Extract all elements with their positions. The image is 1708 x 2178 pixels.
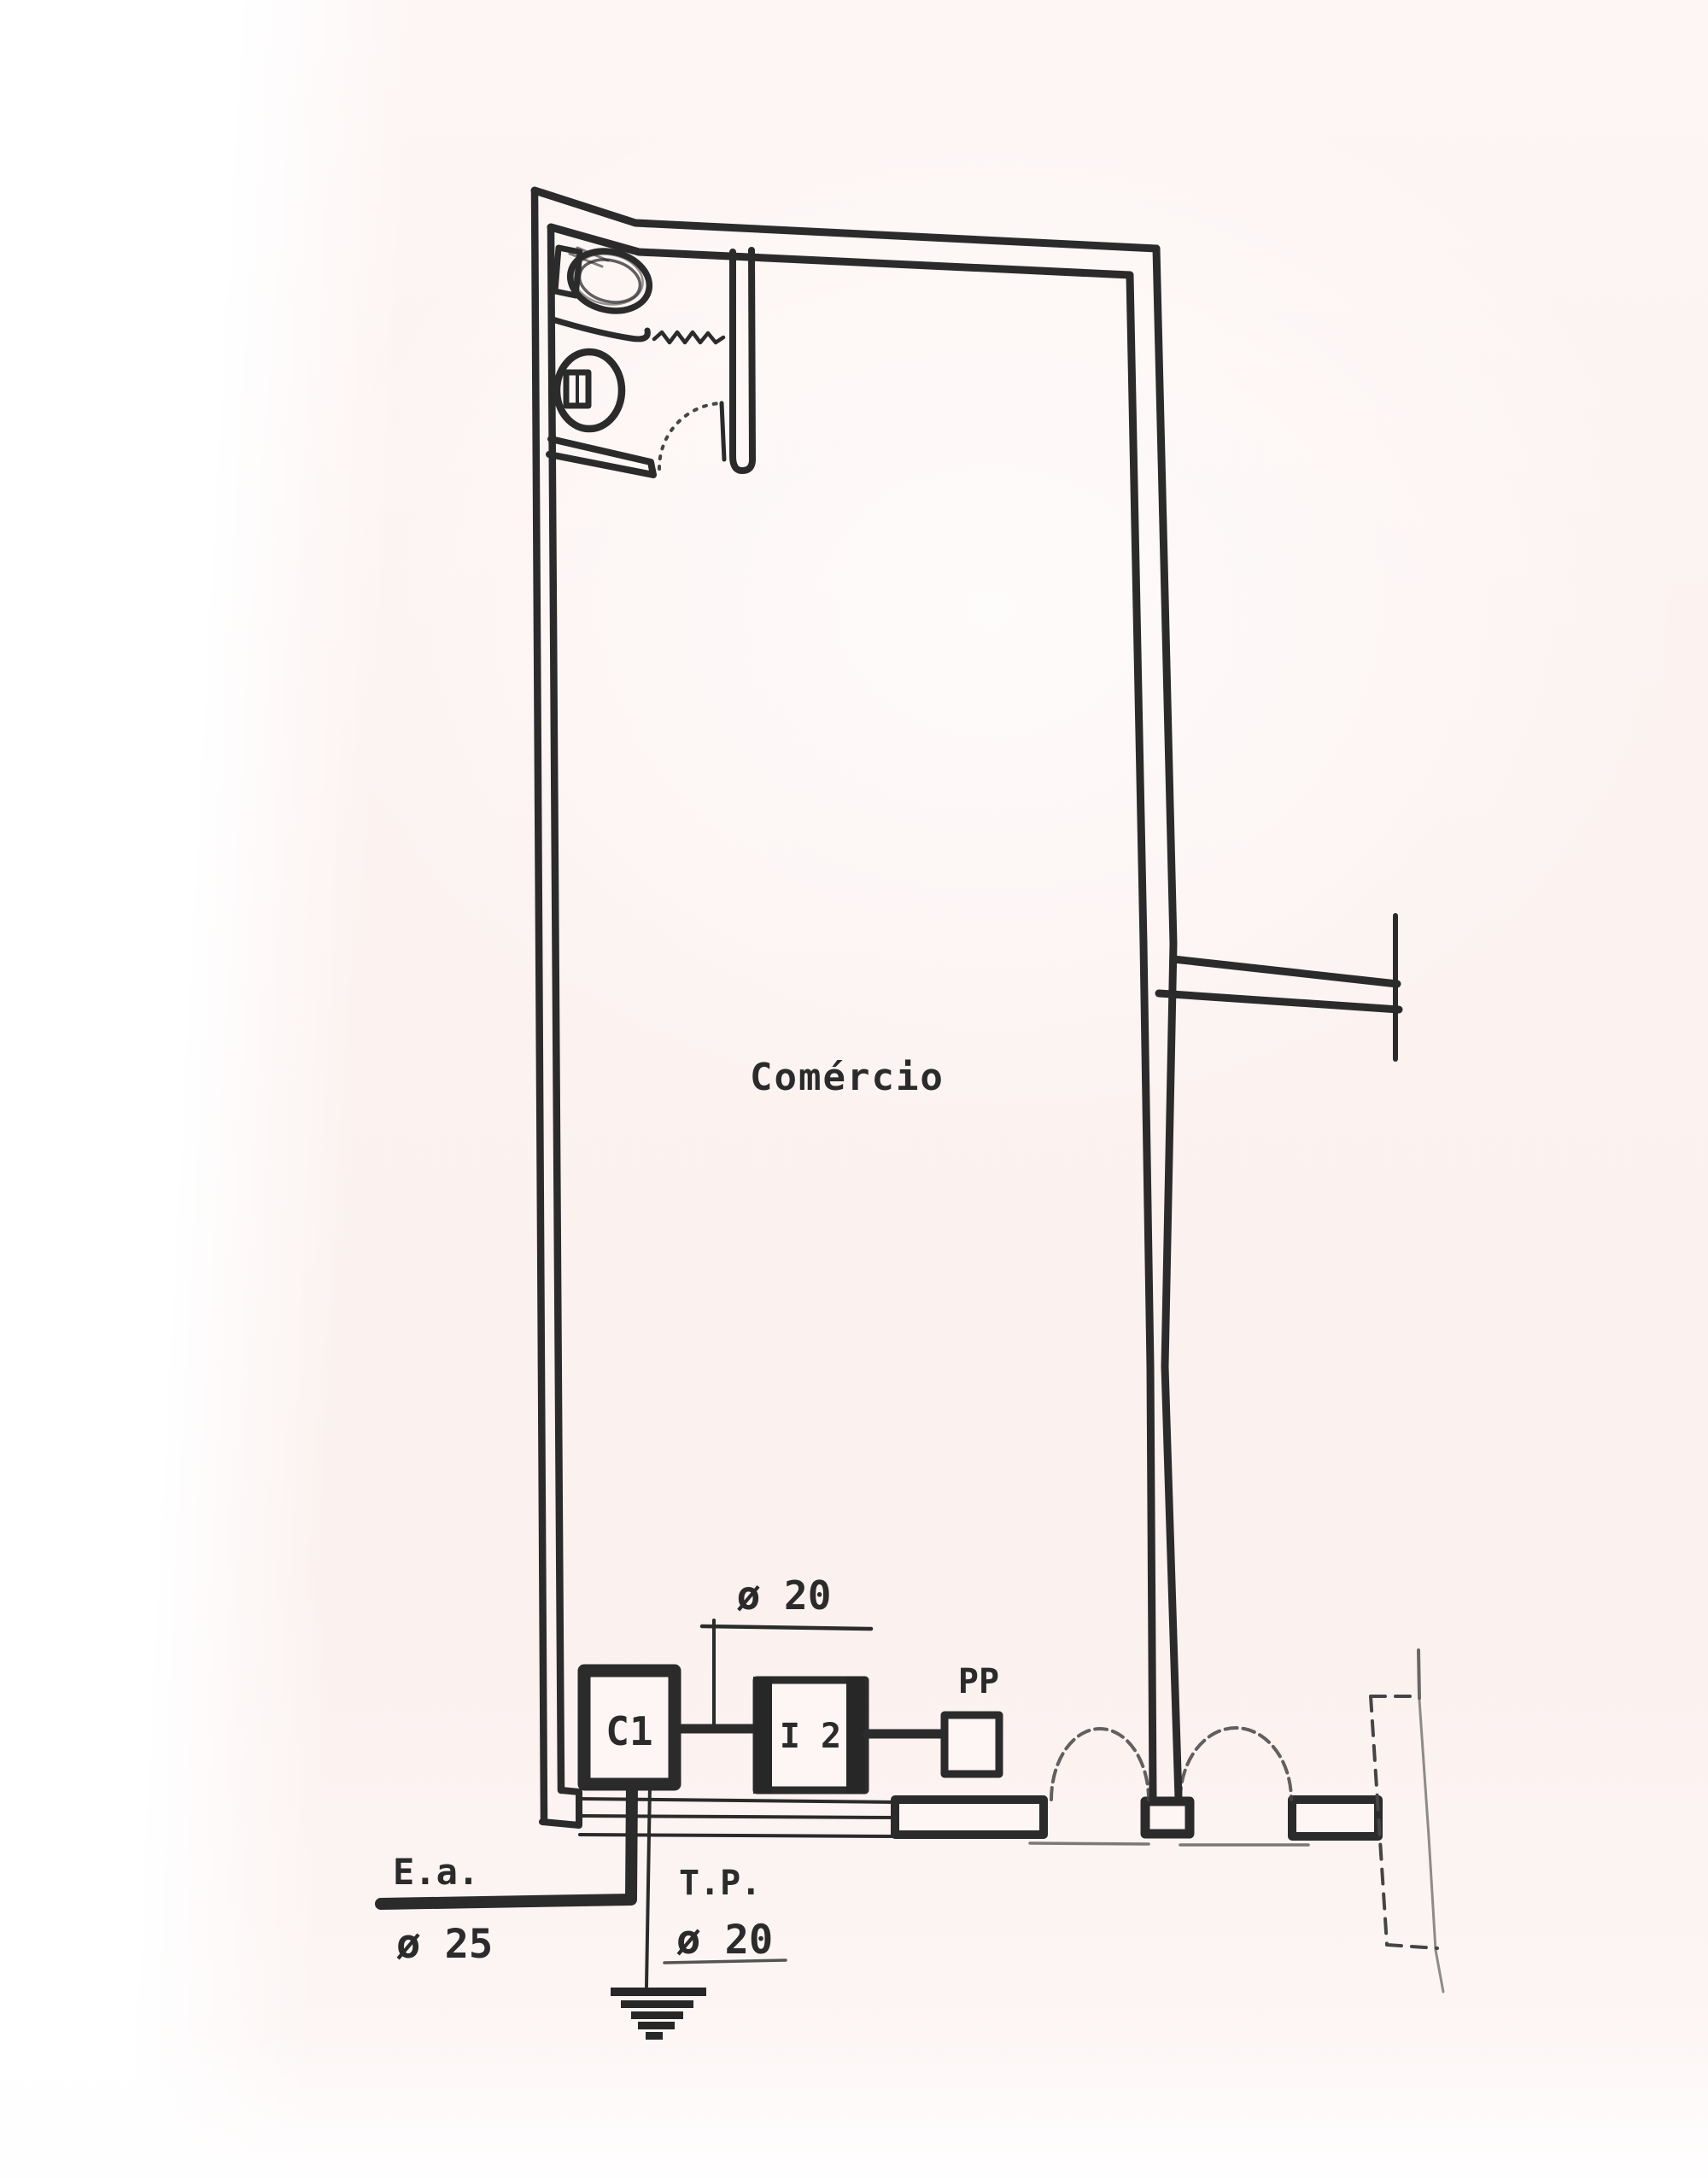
door-swing-icon	[1051, 1729, 1149, 1800]
right-wall-inner-line	[1130, 275, 1153, 1799]
right-wall-outer-line	[1156, 249, 1179, 1799]
door-swing-icon	[1180, 1728, 1291, 1800]
floor-plan-drawing: C1 ø 20 I 2 PP E.a. ø 25 T.P. ø 20 Comér…	[0, 0, 1708, 2178]
bathroom-partition-wall	[733, 250, 752, 471]
left-wall-end-cap	[542, 1790, 579, 1825]
projection-stub-line	[1418, 1650, 1419, 1698]
bathroom	[549, 243, 752, 475]
scanned-floor-plan-page: C1 ø 20 I 2 PP E.a. ø 25 T.P. ø 20 Comér…	[0, 0, 1708, 2178]
conduit-diameter-label: ø 20	[737, 1572, 832, 1619]
door-post	[1145, 1801, 1190, 1834]
door-swing-icon	[659, 403, 722, 469]
ground-diameter-label: ø 20	[676, 1917, 773, 1964]
sink-icon	[553, 243, 656, 339]
switch-box-right-bar	[846, 1677, 865, 1794]
ground-bar	[611, 1988, 706, 1996]
vanity-counter-edge	[553, 319, 647, 339]
top-wall-outer-line	[535, 190, 1156, 249]
left-wall-outer-line	[535, 190, 544, 1821]
ground-bar	[646, 2032, 663, 2040]
diameter-label-underline	[702, 1626, 871, 1629]
display-window-icon	[895, 1800, 1044, 1835]
toilet-icon	[557, 352, 622, 429]
pp-outlet-box	[945, 1715, 999, 1774]
switch-box-i2-label: I 2	[780, 1717, 841, 1756]
display-window-icon	[1292, 1800, 1378, 1836]
service-entry-label: E.a.	[393, 1851, 479, 1893]
ground-bar	[638, 2022, 675, 2029]
switch-box-left-bar	[753, 1677, 772, 1794]
left-wall-inner-line	[551, 227, 561, 1790]
building-walls	[535, 190, 1399, 1825]
service-entry-diameter-label: ø 25	[396, 1921, 493, 1968]
door-leaf-line	[722, 403, 724, 460]
earth-ground-icon	[611, 1988, 706, 2040]
pp-label: PP	[958, 1662, 999, 1701]
side-wall-stub-top-line	[1173, 959, 1397, 984]
room-label: Comércio	[750, 1056, 945, 1099]
ground-label: T.P.	[679, 1864, 761, 1903]
ground-bar	[631, 2011, 683, 2019]
shower-zigzag-icon	[654, 332, 723, 343]
switch-box-i2: I 2	[753, 1677, 865, 1794]
door-threshold-line	[1030, 1843, 1149, 1844]
bathroom-bottom-wall	[549, 439, 653, 475]
side-wall-stub-bottom-line	[1159, 993, 1399, 1010]
ground-bar	[621, 2000, 693, 2008]
circuit-box-c1-label: C1	[605, 1708, 652, 1754]
